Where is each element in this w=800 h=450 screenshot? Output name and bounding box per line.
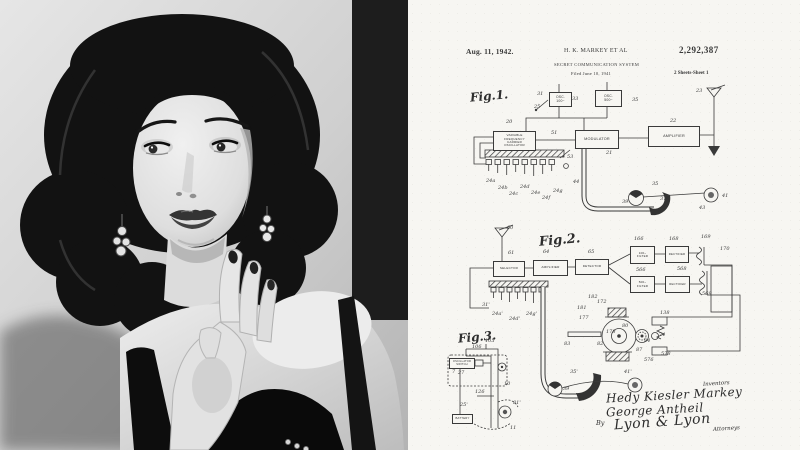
reference-numeral: 166 [634,236,644,242]
reference-numeral: 44 [573,179,579,185]
reference-numeral: 25' [460,402,468,408]
reference-numeral: 41 [722,193,728,199]
reference-numeral: 7 [452,369,455,375]
patent-box-filter-500: 500~FILTER [630,276,655,293]
reference-numeral: 126 [475,389,485,395]
patent-title: SECRET COMMUNICATION SYSTEM [554,62,639,67]
reference-numeral: 61 [508,250,514,256]
reference-numeral: 182 [588,294,598,300]
patent-box-selector: SELECTOR [493,261,525,277]
reference-numeral: 578 [661,351,671,357]
reference-numeral: 64 [543,249,549,255]
patent-box-osc-100: OSC.100~ [549,92,572,107]
reference-numeral: 566 [636,267,646,273]
portrait-photo [0,0,408,450]
reference-numeral: 27 [458,370,464,376]
reference-numeral: 168 [669,236,679,242]
reference-numeral: 87 [636,347,642,353]
by-label: By [596,419,604,427]
reference-numeral: 35 [652,181,658,187]
reference-numeral: 170 [720,246,730,252]
reference-numeral: 31 [537,91,543,97]
patent-box-variable-frequency-carrier-oscillator: VARIABLEFREQUENCYCARRIEROSCILLATOR [493,131,536,151]
patent-box-detector: DETECTOR [575,259,609,275]
reference-numeral: 576 [644,357,654,363]
contact-bank-fig2 [491,288,544,293]
reference-numeral: 11 [510,425,516,431]
reference-numeral: 24a [486,178,495,184]
patent-box-rectifier-lower: RECTIFIER [665,276,690,293]
patent-panel: Aug. 11, 1942. H. K. MARKEY ET AL 2,292,… [408,0,800,450]
patent-number: 2,292,387 [679,45,719,55]
reference-numeral: 181 [577,305,587,311]
reference-numeral: 83 [564,341,570,347]
reference-numeral: 51 [551,130,557,136]
ground-arrow-icon [708,146,720,156]
reference-numeral: 25 [534,104,540,110]
reference-numeral: 172 [597,299,607,305]
patent-box-battery-fig3: BATTERY [452,414,473,424]
portrait-panel [0,0,408,450]
record-ribbon-fig2 [489,281,548,287]
reference-numeral: 24b [498,185,508,191]
patent-date: Aug. 11, 1942. [466,47,514,56]
patent-box-modulator: MODULATOR [575,130,619,149]
reference-numeral: 31' [482,302,490,308]
reference-numeral: 568 [677,266,687,272]
patent-box-rectifier-upper: RECTIFIER [665,246,689,263]
patent-box-filter-100: 100~FILTER [630,246,655,264]
reference-numeral: 84 [644,338,650,344]
dark-drape [352,0,408,320]
reference-numeral: 24e [531,190,540,196]
patent-diagram-lines [408,0,800,450]
patent-sheet-count: 2 Sheets-Sheet 1 [674,71,708,76]
patent-box-amplifier-fig2: AMPLIFIER [533,260,568,276]
reference-numeral: 82 [597,341,603,347]
reference-numeral: 81' [513,400,521,406]
reference-numeral: 23 [696,88,702,94]
reference-numeral: 80 [622,323,628,329]
solenoid-upper [652,317,667,325]
reference-numeral: 65 [588,249,594,255]
reference-numeral: 569 [702,291,712,297]
reference-numeral: 35 [632,97,638,103]
reference-numeral: 24c [509,191,518,197]
reference-numeral: 10 [504,381,510,387]
patent-box-osc-500: OSC.500~ [595,90,622,107]
reference-numeral: 24g [553,188,563,194]
reference-numeral: 43 [699,205,705,211]
reference-numeral: 24d' [509,316,520,322]
patent-filed-date: Filed June 10, 1941 [571,71,611,76]
reference-numeral: 24g' [526,311,537,317]
reference-numeral: 24a' [492,311,503,317]
reference-numeral: 35' [570,369,578,375]
reference-numeral: 60 [507,225,513,231]
reference-numeral: 20 [506,119,512,125]
record-ribbon-fig1 [485,150,564,157]
relay-coil-icon [697,247,702,265]
reference-numeral: 24f [542,195,550,201]
patent-box-oscillator-fig3: OSCILLATORSWITCH [449,358,475,369]
composite-image: Aug. 11, 1942. H. K. MARKEY ET AL 2,292,… [0,0,800,450]
tube-bend-fig2 [576,373,601,401]
reference-numeral: 106 [472,344,482,350]
reference-numeral: 39 [563,386,569,392]
reference-numeral: 22 [670,118,676,124]
reference-numeral: 24d [520,184,530,190]
reference-numeral: 178 [606,329,616,335]
patent-box-amplifier-fig1: AMPLIFIER [648,126,700,147]
reference-numeral: 33 [572,96,578,102]
reference-numeral: 169 [701,234,711,240]
reference-numeral: 74 [659,332,665,338]
reference-numeral: 21 [606,150,612,156]
reference-numeral: 105 [485,338,495,344]
patent-inventor-name: H. K. MARKEY ET AL [564,48,628,54]
reference-numeral: 39 [622,199,628,205]
reference-numeral: 177 [579,315,589,321]
reference-numeral: 53 [567,154,573,160]
drive-shaft [568,332,601,337]
reference-numeral: 41' [624,369,632,375]
contact-bank-fig1 [486,160,555,165]
reference-numeral: 37 [660,196,666,202]
reference-numeral: 138 [660,310,670,316]
